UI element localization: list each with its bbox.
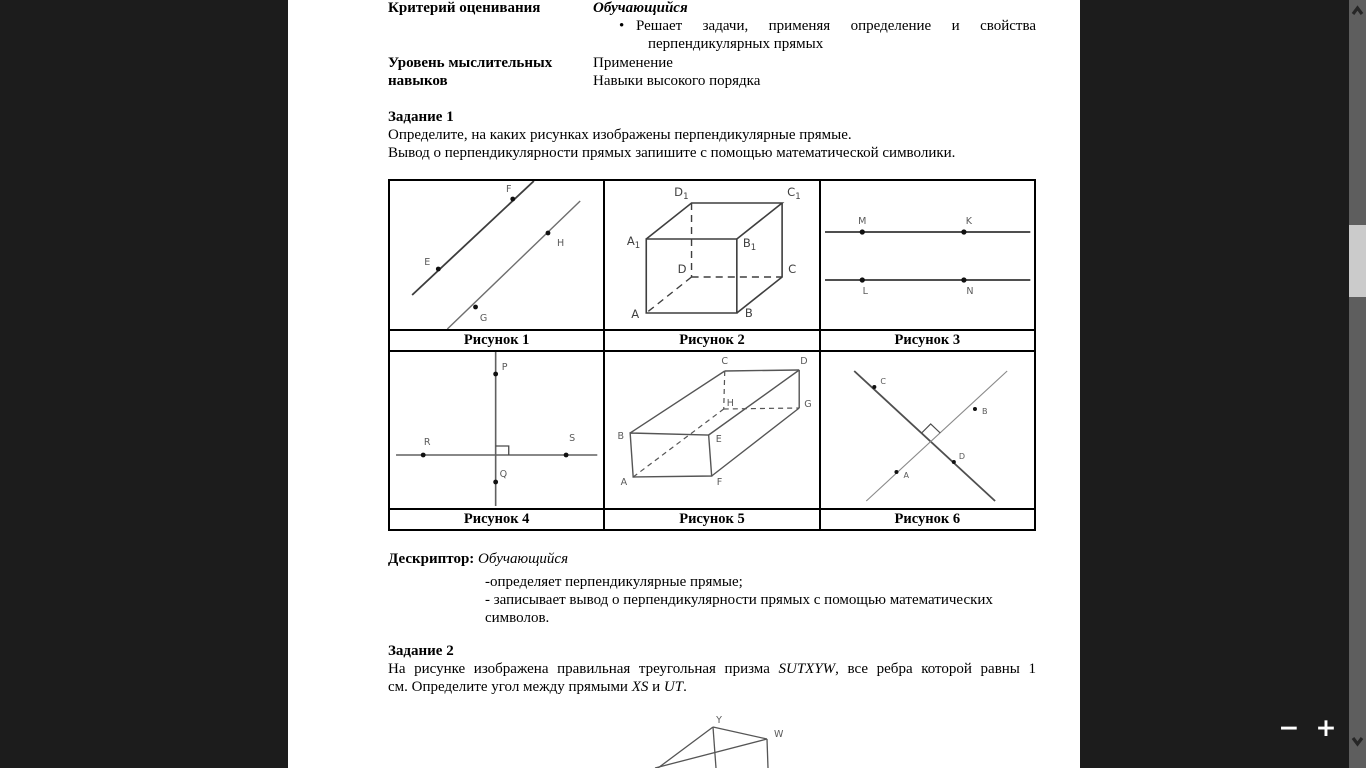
vertex-label-H: H	[727, 398, 734, 409]
task1-line-1: Определите, на каких рисунках изображены…	[388, 126, 852, 144]
scrollbar[interactable]	[1349, 0, 1366, 768]
task2-text: .	[683, 679, 687, 695]
chevron-down-icon	[1349, 733, 1366, 749]
point-label-L: L	[862, 286, 868, 297]
descriptor-item-2-line-2: символов.	[485, 609, 549, 627]
task2-line-ut: UT	[664, 679, 683, 695]
task1-line-2: Вывод о перпендикулярности прямых запиши…	[388, 144, 955, 162]
point-label-M: M	[858, 216, 866, 227]
point-label-B: B	[982, 407, 988, 416]
figure-cell-2: D1 C1 A1 B1 D C A B	[604, 180, 819, 330]
task2-title: Задание 2	[388, 642, 454, 660]
vertex-label-C: C	[788, 262, 796, 276]
vertex-label-D: D	[801, 356, 808, 367]
task2-text: см. Определите угол между прямыми	[388, 679, 632, 695]
figure-2-diagram: D1 C1 A1 B1 D C A B	[605, 181, 818, 329]
figure-cell-4: P Q R S	[389, 351, 604, 509]
vertex-label-D1: D1	[675, 185, 689, 202]
chevron-up-icon	[1349, 3, 1366, 19]
zoom-out-button[interactable]: −	[1275, 712, 1303, 744]
point-label-N: N	[966, 286, 973, 297]
criteria-bullet-line-2: перпендикулярных прямых	[648, 35, 823, 53]
prism-diagram: Y W	[646, 710, 796, 768]
task1-title: Задание 1	[388, 108, 454, 126]
point-label-G: G	[480, 313, 487, 324]
scrollbar-thumb[interactable]	[1349, 225, 1366, 297]
skills-label-line-2: навыков	[388, 72, 448, 90]
figure-1-caption: Рисунок 1	[389, 330, 604, 351]
figure-4-diagram: P Q R S	[390, 352, 603, 508]
figure-cell-6: C D A B	[820, 351, 1035, 509]
vertex-label-C1: C1	[787, 185, 801, 202]
vertex-label-F: F	[717, 477, 723, 488]
vertex-label-C: C	[722, 356, 729, 367]
vertex-label-B: B	[745, 306, 753, 320]
vertex-label-A1: A1	[627, 234, 640, 251]
vertex-label-Y: Y	[715, 715, 722, 726]
criteria-bullet-line-1: Решает задачи, применяя определение и св…	[636, 17, 1036, 35]
scrollbar-down-button[interactable]	[1349, 733, 1366, 753]
figure-2-caption: Рисунок 2	[604, 330, 819, 351]
point-label-C: C	[880, 377, 886, 386]
point-label-R: R	[424, 437, 431, 448]
descriptor-item-2-line-1: - записывает вывод о перпендикулярности …	[485, 591, 993, 609]
point-label-E: E	[424, 257, 430, 268]
figure-6-caption: Рисунок 6	[820, 509, 1035, 530]
figure-1-diagram: E F G H	[390, 181, 603, 329]
criteria-value-title: Обучающийся	[593, 0, 688, 17]
point-label-P: P	[502, 362, 508, 373]
figure-cell-1: E F G H	[389, 180, 604, 330]
point-label-D: D	[959, 452, 965, 461]
figure-5-diagram: C D G H B E A F	[605, 352, 818, 508]
task2-line-1: На рисунке изображена правильная треугол…	[388, 660, 1036, 678]
criteria-label: Критерий оценивания	[388, 0, 540, 17]
point-label-S: S	[569, 433, 575, 444]
zoom-in-button[interactable]: +	[1312, 712, 1340, 744]
vertex-label-E: E	[716, 434, 722, 445]
task2-line-2: см. Определите угол между прямыми XS и U…	[388, 678, 687, 696]
figure-5-caption: Рисунок 5	[604, 509, 819, 530]
figure-6-diagram: C D A B	[821, 352, 1034, 508]
figure-4-caption: Рисунок 4	[389, 509, 604, 530]
point-label-A: A	[903, 471, 909, 480]
descriptor-subject: Обучающийся	[478, 551, 568, 567]
descriptor-line: Дескриптор: Обучающийся	[388, 550, 568, 568]
figure-3-diagram: M K L N	[821, 181, 1034, 329]
bullet-glyph: •	[619, 17, 624, 35]
skills-label-line-1: Уровень мыслительных	[388, 54, 552, 72]
task2-text: , все ребра которой равны 1	[835, 661, 1036, 677]
figure-3-caption: Рисунок 3	[820, 330, 1035, 351]
descriptor-label: Дескриптор:	[388, 551, 474, 567]
scrollbar-up-button[interactable]	[1349, 3, 1366, 23]
figure-cell-3: M K L N	[820, 180, 1035, 330]
vertex-label-A: A	[621, 477, 628, 488]
document-page: Критерий оценивания Обучающийся • Решает…	[288, 0, 1080, 768]
vertex-label-A: A	[632, 307, 640, 321]
vertex-label-B: B	[618, 431, 625, 442]
vertex-label-B1: B1	[743, 236, 756, 253]
task2-prism-name: SUTXYW	[778, 661, 835, 677]
figure-cell-5: C D G H B E A F	[604, 351, 819, 509]
skills-value-line-2: Навыки высокого порядка	[593, 72, 760, 90]
descriptor-item-1: -определяет перпендикулярные прямые;	[485, 573, 743, 591]
vertex-label-W: W	[774, 729, 784, 740]
point-label-F: F	[506, 184, 512, 195]
task2-text: и	[648, 679, 664, 695]
point-label-H: H	[557, 238, 564, 249]
point-label-Q: Q	[500, 469, 508, 480]
figure-table: E F G H	[388, 179, 1036, 531]
task2-line-xs: XS	[632, 679, 649, 695]
vertex-label-G: G	[805, 399, 812, 410]
skills-value-line-1: Применение	[593, 54, 673, 72]
vertex-label-D: D	[678, 262, 687, 276]
point-label-K: K	[965, 216, 972, 227]
task2-text: На рисунке изображена правильная треугол…	[388, 661, 778, 677]
